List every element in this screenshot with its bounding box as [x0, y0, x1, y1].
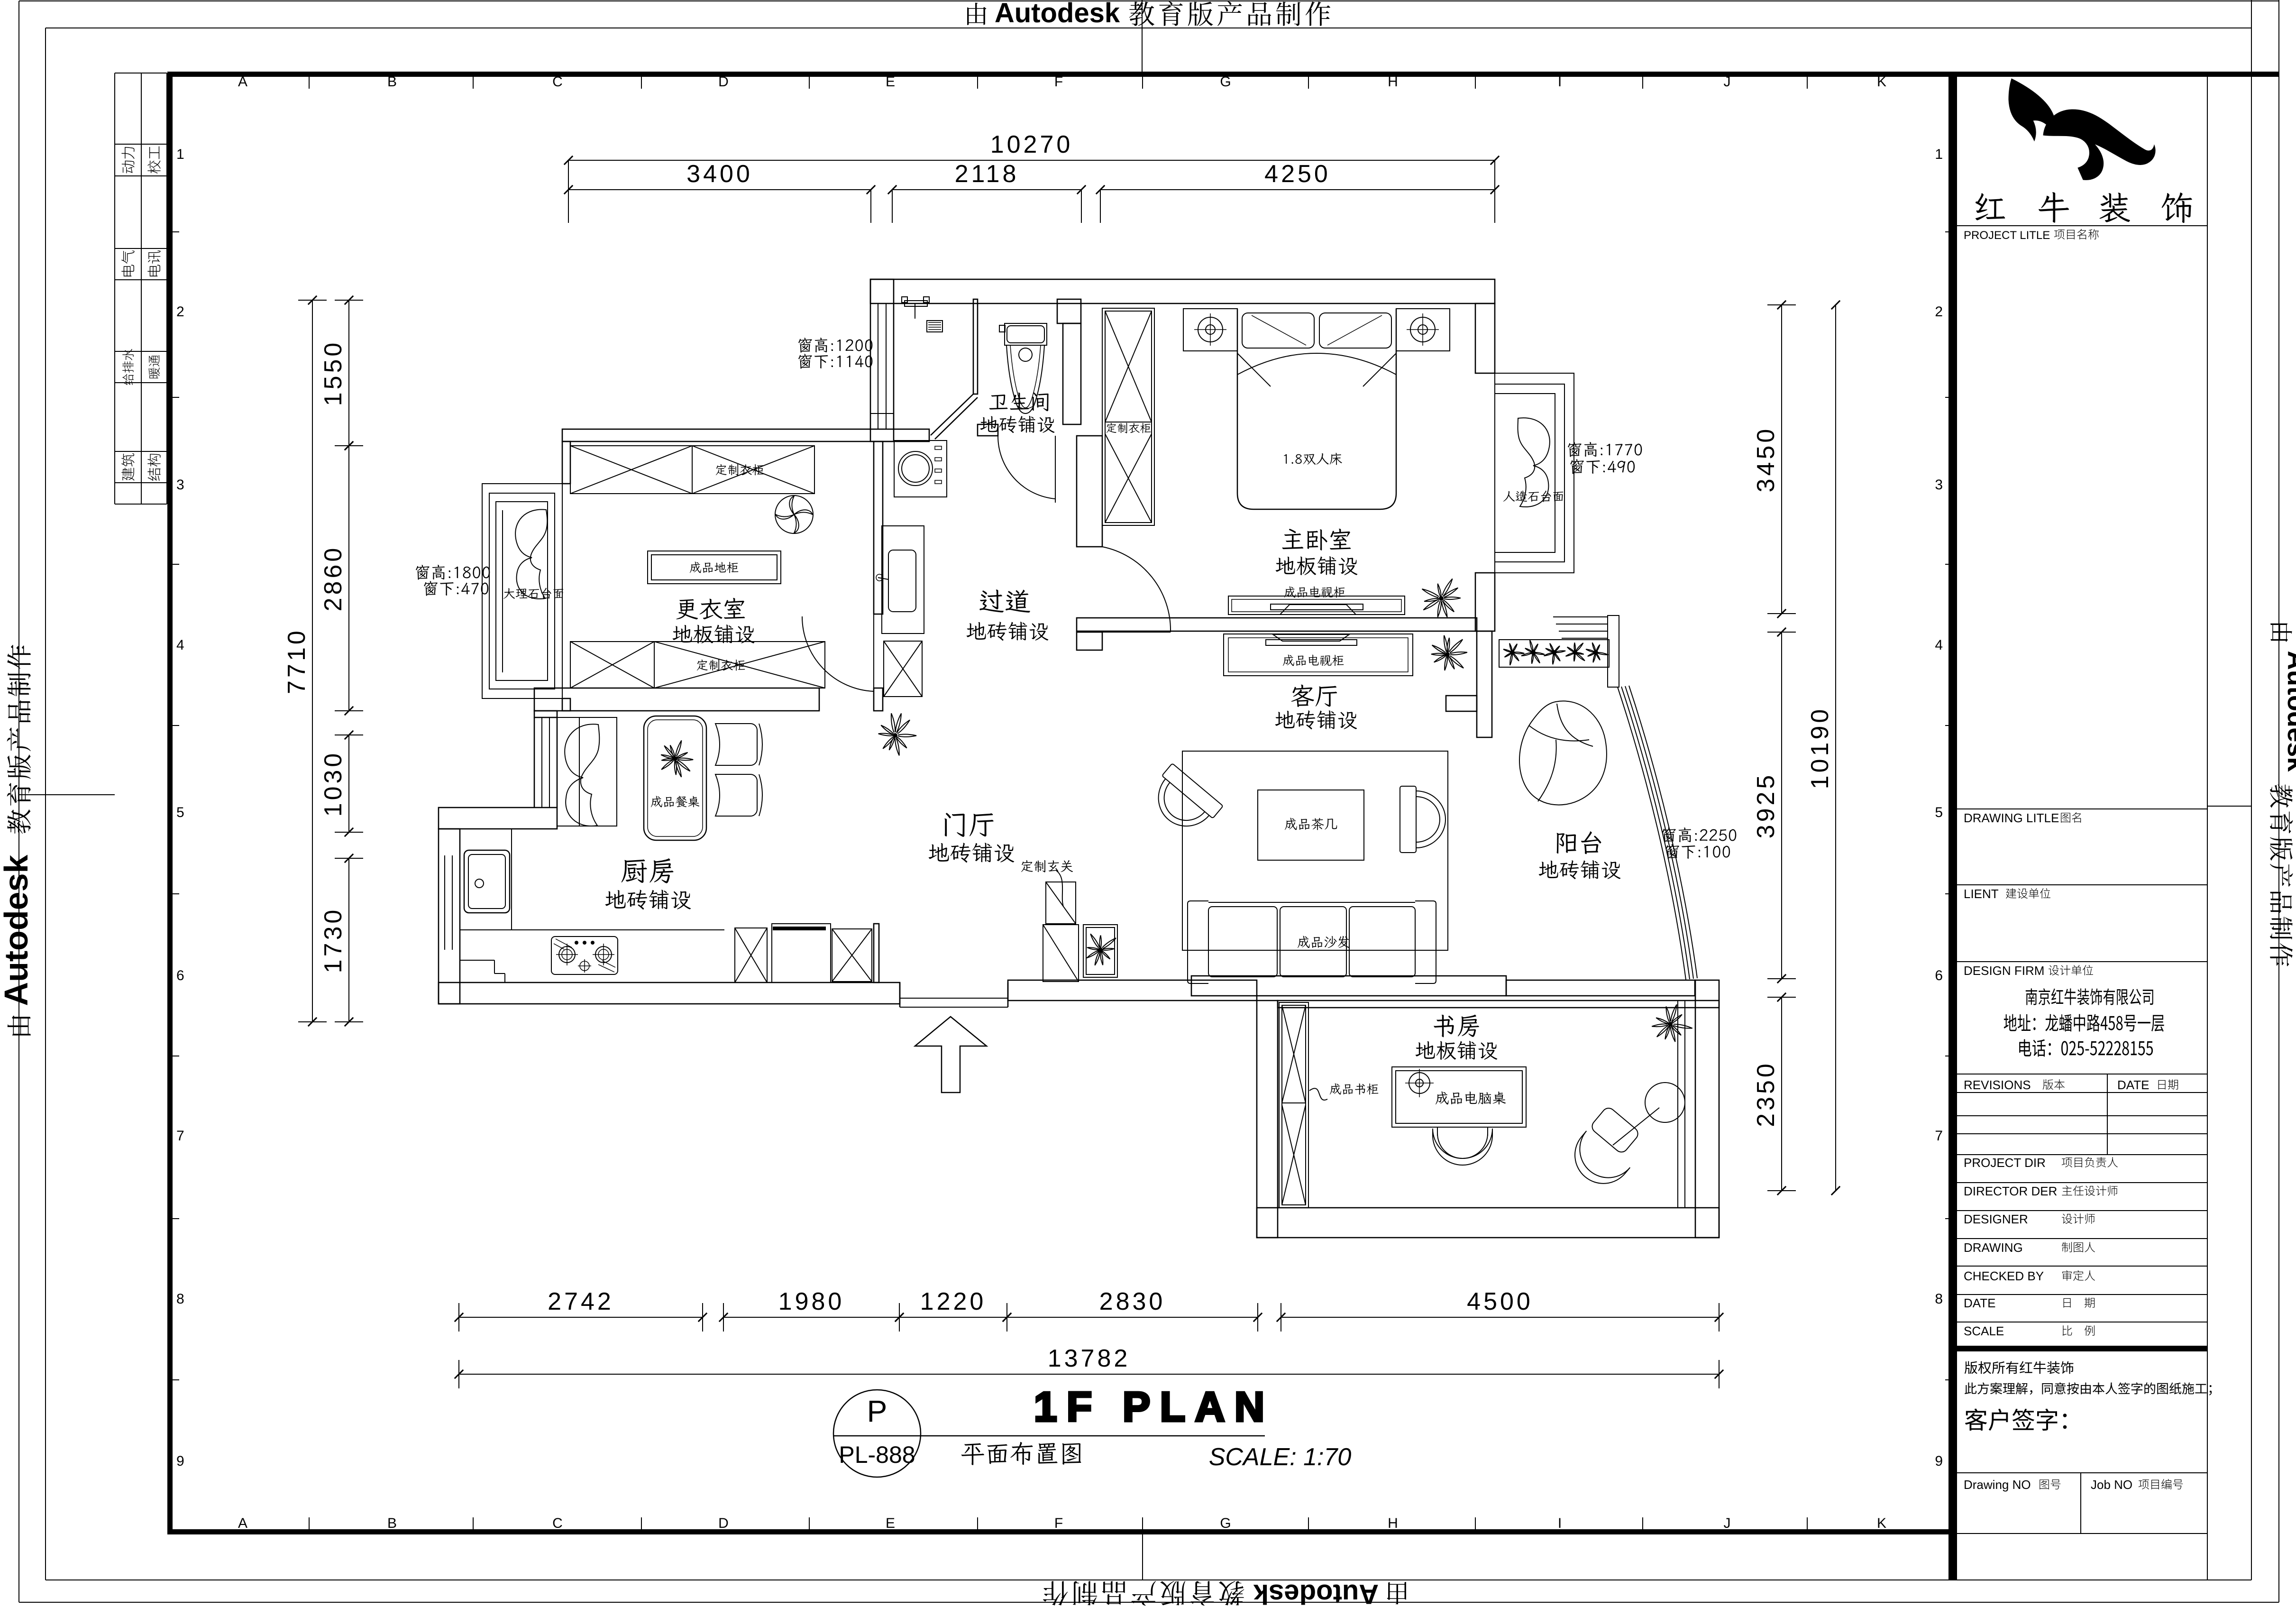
svg-text:3450: 3450 — [1752, 426, 1780, 493]
svg-text:Job NO: Job NO — [2091, 1478, 2132, 1492]
svg-text:Drawing NO: Drawing NO — [1964, 1478, 2031, 1492]
svg-text:2118: 2118 — [955, 160, 1019, 188]
svg-text:I: I — [1558, 1515, 1562, 1531]
svg-text:H: H — [1388, 1515, 1398, 1531]
svg-text:F: F — [1054, 1515, 1063, 1531]
svg-text:C: C — [552, 74, 563, 90]
svg-text:2: 2 — [1935, 304, 1943, 320]
svg-text:PROJECT DIR: PROJECT DIR — [1964, 1156, 2046, 1170]
svg-text:A: A — [238, 74, 247, 90]
svg-text:1F PLAN: 1F PLAN — [1034, 1383, 1274, 1430]
svg-text:3925: 3925 — [1752, 772, 1780, 839]
svg-text:H: H — [1388, 74, 1398, 90]
svg-text:2: 2 — [176, 304, 184, 320]
svg-text:2350: 2350 — [1752, 1061, 1780, 1127]
svg-text:4250: 4250 — [1264, 160, 1331, 188]
svg-text:6: 6 — [176, 968, 184, 983]
svg-text:3: 3 — [1935, 477, 1943, 493]
svg-text:A: A — [238, 1515, 247, 1531]
svg-text:8: 8 — [176, 1291, 184, 1307]
svg-text:DIRECTOR DER: DIRECTOR DER — [1964, 1184, 2057, 1198]
svg-text:10190: 10190 — [1806, 707, 1834, 790]
svg-text:3: 3 — [176, 477, 184, 493]
svg-text:7: 7 — [1935, 1128, 1943, 1144]
svg-text:DESIGNER: DESIGNER — [1964, 1212, 2028, 1226]
svg-text:Autodesk: Autodesk — [2282, 651, 2296, 772]
svg-text:4: 4 — [176, 637, 184, 653]
svg-text:4500: 4500 — [1467, 1288, 1533, 1315]
svg-text:1: 1 — [1935, 147, 1943, 162]
svg-text:DATE: DATE — [1964, 1296, 1995, 1310]
svg-text:9: 9 — [176, 1453, 184, 1469]
svg-text:J: J — [1724, 74, 1731, 90]
svg-text:I: I — [1558, 74, 1562, 90]
svg-text:PL-888: PL-888 — [839, 1442, 915, 1468]
svg-text:J: J — [1724, 1515, 1731, 1531]
svg-text:10270: 10270 — [990, 131, 1073, 158]
svg-text:2830: 2830 — [1099, 1288, 1166, 1315]
svg-text:5: 5 — [176, 805, 184, 820]
svg-text:3400: 3400 — [686, 160, 753, 188]
svg-text:8: 8 — [1935, 1291, 1943, 1307]
svg-text:B: B — [387, 74, 397, 90]
svg-text:G: G — [1220, 74, 1231, 90]
svg-text:PROJECT LITLE: PROJECT LITLE — [1964, 229, 2050, 242]
svg-text:9: 9 — [1935, 1453, 1943, 1469]
svg-text:2742: 2742 — [548, 1288, 614, 1315]
svg-text:6: 6 — [1935, 968, 1943, 983]
svg-text:E: E — [886, 74, 895, 90]
svg-text:D: D — [718, 74, 729, 90]
svg-text:K: K — [1877, 1515, 1886, 1531]
svg-text:D: D — [718, 1515, 729, 1531]
svg-text:DRAWING: DRAWING — [1964, 1240, 2023, 1255]
svg-text:B: B — [387, 1515, 397, 1531]
svg-text:1220: 1220 — [920, 1288, 987, 1315]
svg-text:1: 1 — [176, 147, 184, 162]
svg-text:4: 4 — [1935, 637, 1943, 653]
svg-text:1980: 1980 — [778, 1288, 845, 1315]
svg-text:7: 7 — [176, 1128, 184, 1144]
svg-text:DATE: DATE — [2117, 1078, 2149, 1092]
svg-text:5: 5 — [1935, 805, 1943, 820]
svg-text:1550: 1550 — [320, 340, 347, 406]
svg-text:G: G — [1220, 1515, 1231, 1531]
svg-text:REVISIONS: REVISIONS — [1964, 1078, 2031, 1092]
svg-text:E: E — [886, 1515, 895, 1531]
svg-text:7710: 7710 — [283, 628, 311, 694]
svg-text:LIENT: LIENT — [1964, 887, 1999, 901]
svg-text:SCALE: SCALE — [1964, 1324, 2004, 1338]
svg-text:K: K — [1877, 74, 1886, 90]
svg-text:DRAWING LITLE: DRAWING LITLE — [1964, 811, 2059, 825]
svg-text:2860: 2860 — [320, 545, 347, 612]
svg-text:Autodesk: Autodesk — [0, 854, 35, 1006]
svg-text:SCALE: 1:70: SCALE: 1:70 — [1209, 1443, 1352, 1471]
svg-text:DESIGN FIRM: DESIGN FIRM — [1964, 964, 2044, 978]
svg-text:P: P — [867, 1394, 887, 1428]
svg-text:CHECKED BY: CHECKED BY — [1964, 1269, 2044, 1283]
svg-text:1030: 1030 — [320, 751, 347, 817]
svg-text:1730: 1730 — [320, 907, 347, 973]
svg-text:Autodesk: Autodesk — [995, 0, 1120, 28]
svg-text:13782: 13782 — [1048, 1345, 1131, 1372]
svg-text:C: C — [552, 1515, 563, 1531]
svg-text:F: F — [1054, 74, 1063, 90]
